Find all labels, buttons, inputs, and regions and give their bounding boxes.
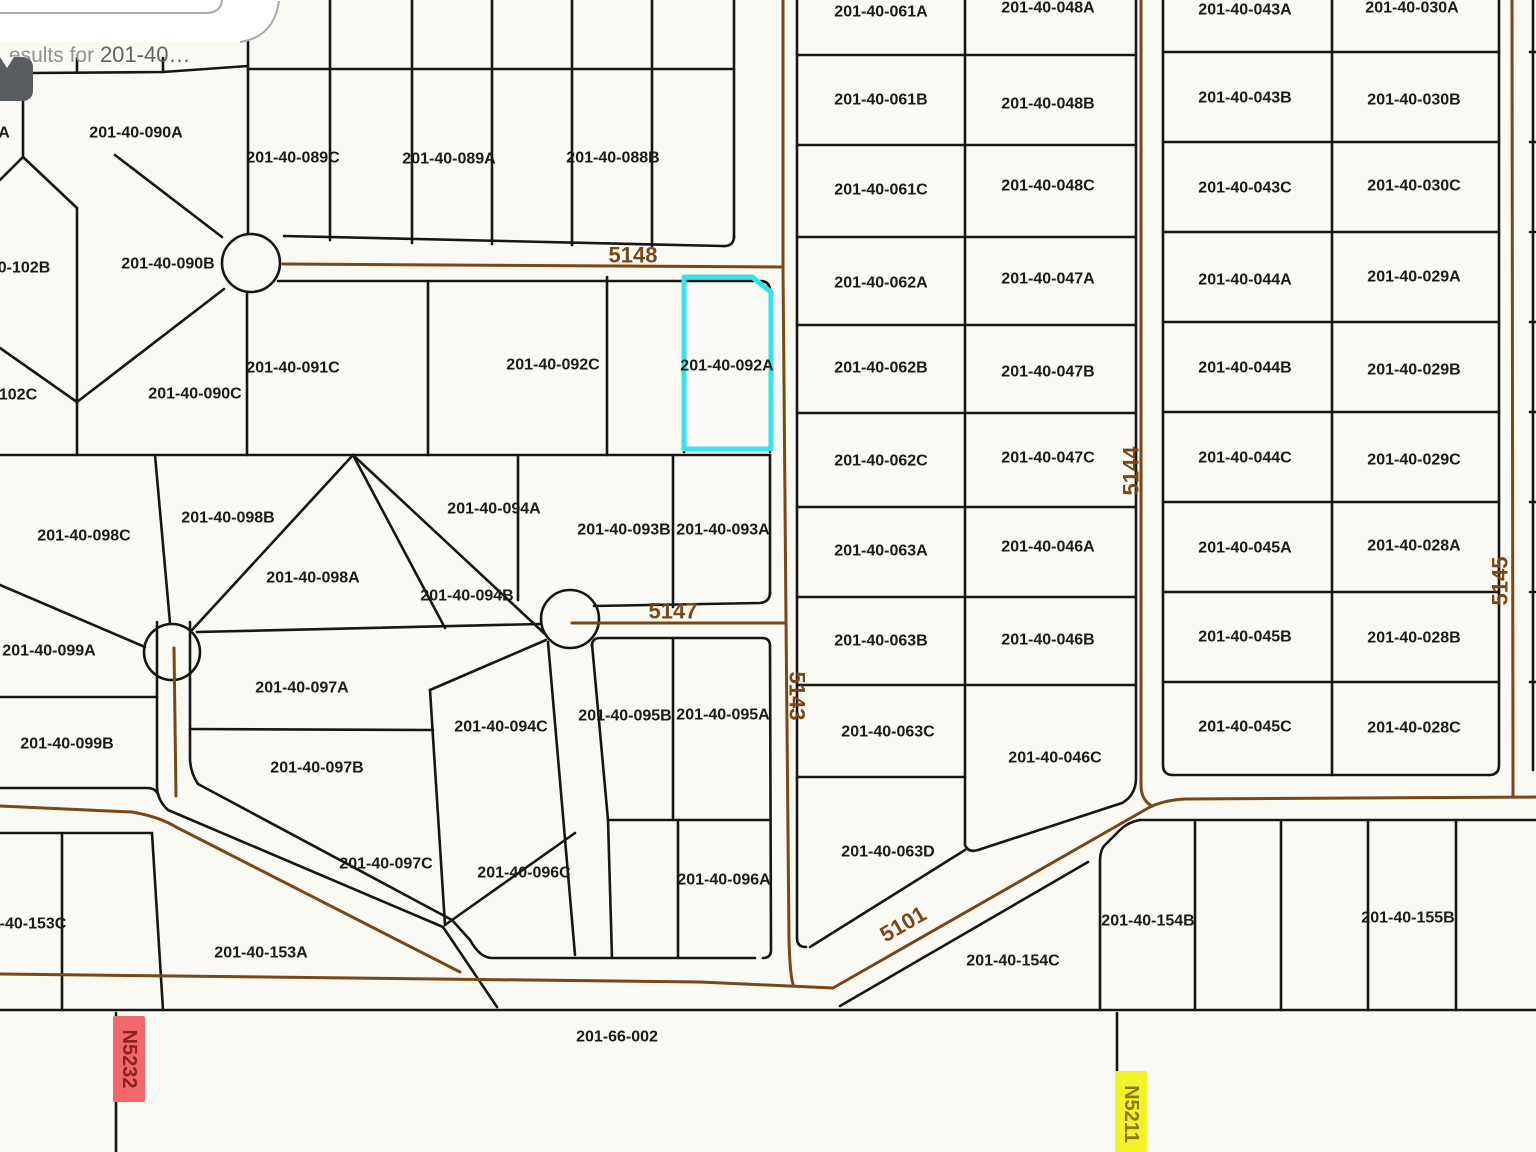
parcel-label: 201-40-089A [402,151,496,168]
parcel-label: 201-40-061C [834,182,928,199]
road-centerline [174,648,176,796]
route-marker: N5232 [113,1016,145,1102]
route-marker-label: N5232 [118,1030,140,1089]
parcel-label: 201-40-097C [339,856,433,873]
parcel-label: 201-40-095B [578,708,671,725]
parcel-label: 201-40-048B [1001,96,1094,113]
parcel-label: 201-40-153A [214,945,308,962]
road-label: 5148 [609,243,658,268]
parcel-label: 201-40-154B [1101,913,1194,930]
parcel-label: 201-40-090B [121,256,214,273]
parcel-label: 201-40-030B [1367,92,1460,109]
parcel-label: 201-40-061B [834,92,927,109]
parcel-label: 201-40-046A [1001,539,1095,556]
parcel-label: 201-40-043A [1198,2,1292,19]
parcel-label: 201-40-063A [834,543,928,560]
parcel-label: 201-40-099A [2,643,96,660]
map-tool-icon[interactable] [0,57,33,101]
parcel-label: 201-40-048A [1001,0,1095,17]
route-marker-label: N5211 [1120,1085,1142,1143]
parcel-label: 201-40-028C [1367,720,1461,737]
parcel-label: 201-40-098A [266,570,360,587]
parcel-label: 201-40-095A [676,707,770,724]
parcel-label: 201-40-098B [181,510,274,527]
parcel-label: 201-40-063D [841,844,934,861]
parcel-boundary-line [190,729,433,730]
parcel-label: 201-40-099B [20,736,113,753]
parcel-label: 201-40-045A [1198,540,1292,557]
parcel-label: 201-40-096C [477,865,571,882]
parcel-label: 201-40-028A [1367,538,1461,555]
parcel-label: 201-40-092A [680,358,774,375]
parcel-label: 201-40-093A [676,522,770,539]
parcel-label: 201-40-047A [1001,271,1095,288]
parcel-label: 201-40-045C [1198,719,1292,736]
parcel-label: 201-40-097B [270,760,363,777]
parcel-label: 201-40-029B [1367,362,1460,379]
road-label: 5147 [649,599,698,624]
parcel-label: 201-40-047C [1001,450,1095,467]
parcel-label: A [0,125,10,142]
map-background [0,0,1536,1152]
parcel-label: 201-40-090C [148,386,242,403]
parcel-label: 201-40-030A [1365,0,1459,17]
parcel-label: 201-40-154C [966,953,1060,970]
road-label: 5143 [785,672,810,721]
parcel-label: 201-40-045B [1198,629,1291,646]
parcel-label: 201-40-029A [1367,269,1461,286]
parcel-label: 201-40-043B [1198,90,1291,107]
parcel-label: 201-40-062C [834,453,928,470]
road-centerline [1512,0,1513,797]
parcel-label: 201-66-002 [576,1029,658,1046]
parcel-label: 201-40-044A [1198,272,1292,289]
parcel-label: 201-40-155B [1361,910,1454,927]
route-marker: N5211 [1115,1071,1147,1152]
parcel-label: 201-40-029C [1367,452,1461,469]
parcel-label: 201-40-098C [37,528,131,545]
parcel-label: 0-102B [0,260,50,277]
parcel-label: 201-40-094C [454,719,548,736]
parcel-label: 201-40-028B [1367,630,1460,647]
parcel-label: 201-40-044B [1198,360,1291,377]
parcel-label: 201-40-046C [1008,750,1102,767]
parcel-label: 201-40-093B [577,522,670,539]
parcel-map[interactable]: A201-40-090A201-40-089C201-40-089A201-40… [0,0,1536,1152]
parcel-label: 201-40-094A [447,501,541,518]
parcel-label: -40-153C [0,916,67,933]
parcel-label: 201-40-062B [834,360,927,377]
parcel-label: 201-40-062A [834,275,928,292]
parcel-label: 201-40-094B [420,588,513,605]
parcel-label: 201-40-044C [1198,450,1292,467]
parcel-label: 201-40-088B [566,150,659,167]
tool-icon-notch [0,57,14,68]
parcel-label: 201-40-090A [89,125,183,142]
parcel-label: 201-40-047B [1001,364,1094,381]
parcel-label: 201-40-091C [246,360,340,377]
parcel-label: 201-40-092C [506,357,600,374]
search-query-text: 201-40… [100,42,191,67]
parcel-label: 201-40-061A [834,4,928,21]
parcel-label: 201-40-048C [1001,178,1095,195]
road-label: 5145 [1488,557,1513,606]
parcel-label: 201-40-046B [1001,632,1094,649]
parcel-label: 201-40-063B [834,633,927,650]
parcel-label: 201-40-030C [1367,178,1461,195]
parcel-label: 201-40-063C [841,724,935,741]
parcel-label: 201-40-097A [255,680,349,697]
parcel-label: 201-40-096A [677,872,771,889]
road-label: 5144 [1119,446,1144,496]
parcel-label: 102C [0,387,38,404]
parcel-label: 201-40-089C [246,150,340,167]
parcel-label: 201-40-043C [1198,180,1292,197]
